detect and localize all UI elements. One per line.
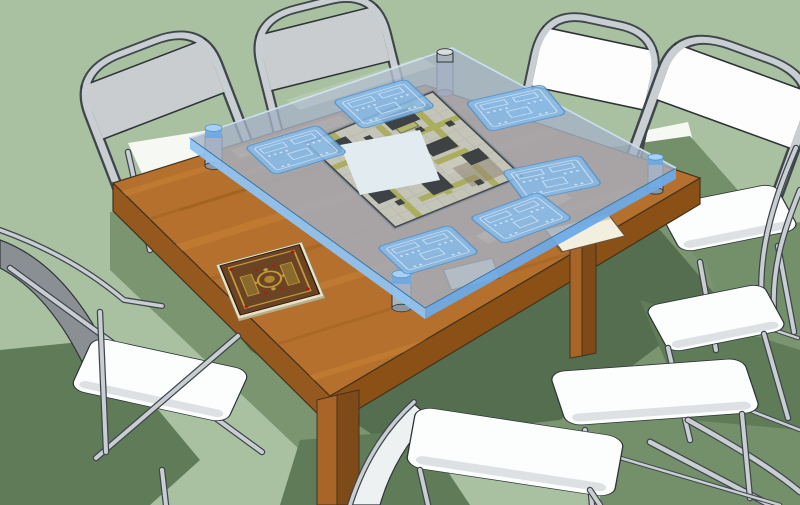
standoff-north-tip — [437, 49, 453, 62]
table-leg-right — [570, 231, 596, 358]
table-leg-front — [317, 390, 359, 505]
standoff-east-tip — [648, 154, 663, 165]
scene-3d-render — [0, 0, 800, 505]
standoff-west-tip — [205, 125, 222, 139]
